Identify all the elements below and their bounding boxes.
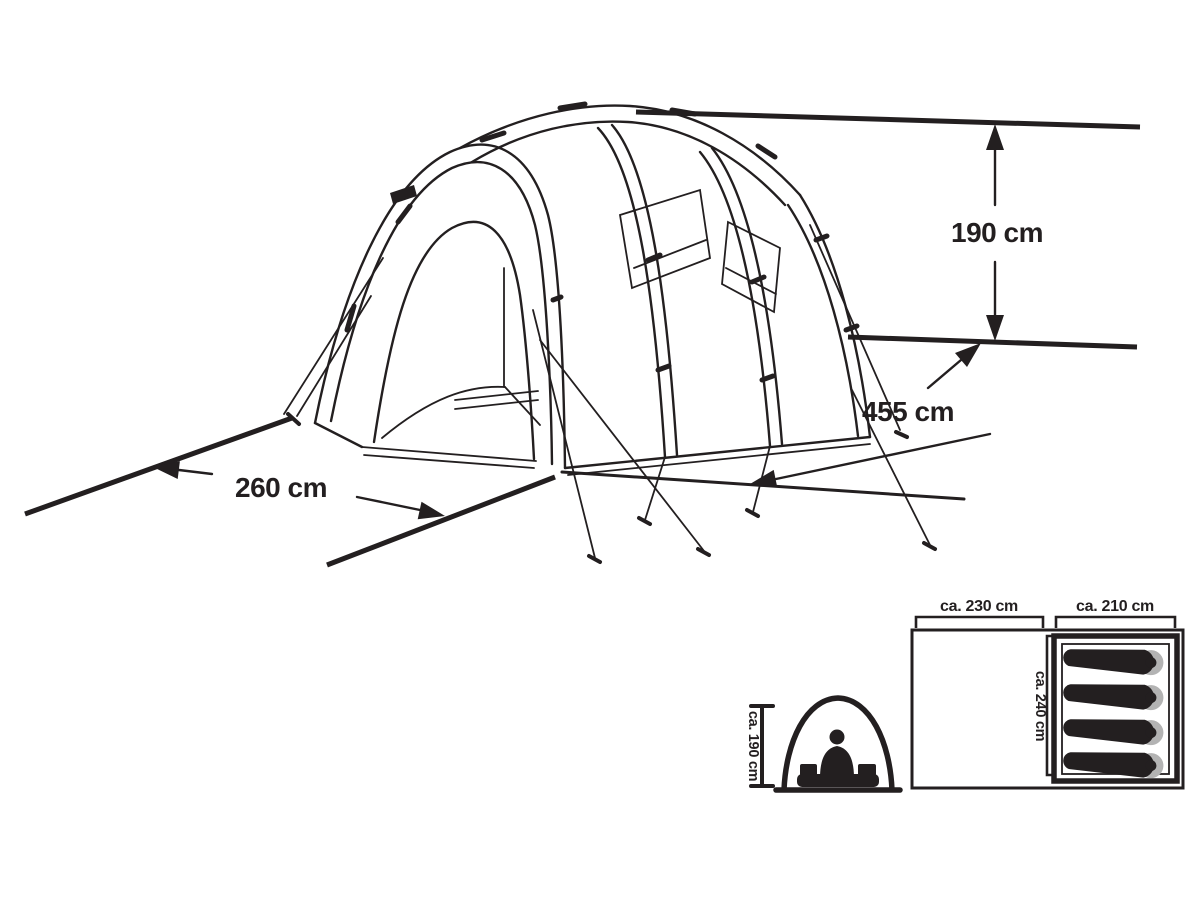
length-label: 455 cm (862, 396, 954, 427)
width-ref-line-right (327, 477, 555, 565)
tent-sleeve-ticks (347, 104, 857, 380)
width-label: 260 cm (235, 472, 327, 503)
front-room-bracket (916, 617, 1043, 628)
height-arrow-down (986, 315, 1004, 341)
tent-door-sill-skirt (364, 455, 534, 468)
tent-inner-threshold-top (455, 391, 538, 400)
tent-base-front (315, 423, 362, 447)
dimension-length: 455 cm (750, 343, 990, 488)
cross-section-height-label: ca. 190 cm (745, 711, 761, 781)
height-arrow-up (986, 124, 1004, 150)
tent-interior-floor-edge (382, 387, 505, 438)
tent-rib1-inner (612, 125, 677, 455)
tent-rib1-outer (598, 128, 665, 457)
front-room-width-label: ca. 230 cm (940, 598, 1018, 615)
tent-base-right (565, 437, 870, 468)
width-arrow-right (418, 502, 445, 520)
height-ref-line-top (636, 112, 1140, 127)
tent-rib2-outer (700, 152, 770, 446)
dimension-width: 260 cm (25, 418, 555, 565)
tent-door-sill (362, 447, 536, 461)
tent-dimension-diagram: 190 cm 455 cm 260 cm ca. 190 cm (0, 0, 1200, 900)
cross-section: ca. 190 cm (745, 698, 900, 790)
length-arrow-up (955, 343, 981, 367)
tent-base-right-skirt (568, 444, 870, 475)
tent-door-arch (374, 222, 534, 459)
person-silhouette (797, 730, 879, 788)
tent-inner-threshold-bottom (455, 400, 538, 409)
tent-front-arch-inner (331, 162, 552, 464)
room-depth-label: ca. 240 cm (1032, 671, 1048, 741)
tent-ridge-outer (460, 106, 800, 195)
sleeping-room-width-label: ca. 210 cm (1076, 598, 1154, 615)
height-label: 190 cm (951, 217, 1043, 248)
sleeping-room-bracket (1056, 617, 1175, 628)
tent-line-drawing (284, 104, 964, 562)
floor-plan: ca. 230 cm ca. 210 cm ca. 240 cm (912, 598, 1183, 788)
diagram-canvas: 190 cm 455 cm 260 cm ca. 190 cm (0, 0, 1200, 900)
height-ref-line-bottom (848, 337, 1137, 347)
